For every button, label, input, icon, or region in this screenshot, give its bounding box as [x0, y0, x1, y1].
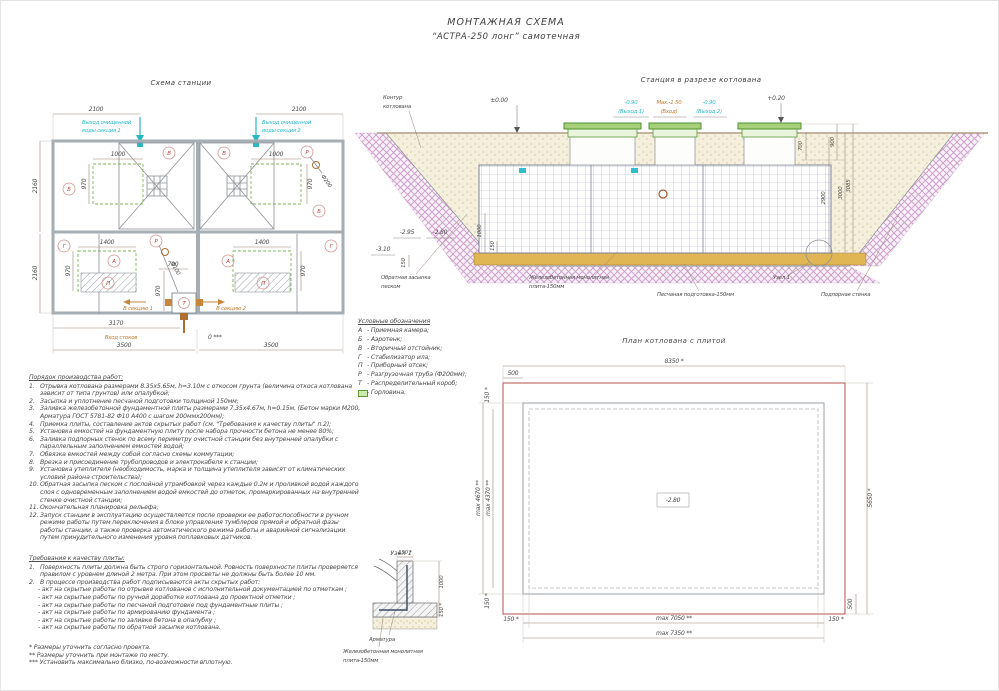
level-zero: ±0.00: [490, 97, 508, 104]
dim-3000: 3000: [838, 186, 844, 200]
dim-1000-wall: 1000: [477, 224, 483, 238]
level-inlet: Max.-1.50: [656, 100, 682, 106]
dim-500-right: 500: [847, 598, 854, 609]
node-dim-150-bottom: 150 *: [439, 603, 445, 617]
contour-label-line2: котлована: [383, 104, 411, 110]
work-order-item: 7.Обвязка емкостей между собой согласно …: [29, 451, 363, 459]
node-dim-1000: 1000: [439, 575, 445, 589]
sandprep-label: Песчаная подготовка-150мм: [657, 292, 734, 298]
dim-3500-right: 3500: [264, 342, 279, 349]
cross-section-drawing: Контур котлована ±0.00 +0.20 -0.90 (Выхо…: [369, 86, 996, 321]
footnote-1: * Размеры уточнить согласно проекта.: [29, 644, 363, 652]
level-m280: -2.80: [433, 229, 448, 236]
to-section2-label: В секцию 2: [216, 306, 247, 312]
act-line: - акт на скрытые работы по отрывке котло…: [38, 586, 363, 594]
plan-top-dims: [53, 114, 343, 139]
hopper-right: [200, 143, 274, 229]
dim-3170: 3170: [109, 320, 124, 327]
letter-G2: Г: [330, 244, 334, 250]
node1-label: Узел 1: [773, 275, 790, 281]
dim-2900: 2900: [821, 191, 827, 205]
dim-970-d: 970: [300, 265, 307, 276]
dim-150-bottom-right: 150 *: [828, 616, 844, 623]
station-plan-drawing: Выход очищенной воды секция 1 Выход очищ…: [26, 89, 361, 369]
dim-1000-left: 1000: [111, 151, 126, 158]
quality-block: Требования к качеству плиты: 1.Поверхнос…: [29, 555, 363, 632]
outlet1-label-line1: Выход очищенной: [82, 120, 132, 126]
dim-2100-left: 2100: [89, 106, 104, 113]
dim-1400-left: 1400: [100, 239, 115, 246]
station-body: [479, 165, 831, 253]
dim-970-b: 970: [307, 178, 314, 189]
station-plan-title: Схема станции: [81, 79, 281, 87]
work-order-item: 1.Отрывка котлована размерами 8.35х5.65м…: [29, 383, 363, 398]
dim-150-bottom-left: 150 *: [503, 616, 519, 623]
dim-700-neck: 700: [798, 140, 804, 150]
dim-2160-bottom: 2160: [32, 265, 39, 280]
to-section1-label: В секцию 1: [123, 306, 153, 312]
work-order-item: 9.Установка утеплителя (необходимость, м…: [29, 466, 363, 481]
outlet1-label-line2: воды секция 1: [82, 128, 121, 134]
discharge-pipes: [159, 157, 322, 292]
node1-geometry: [373, 559, 437, 629]
level-out2-note: (Выход 2): [696, 109, 722, 115]
rebar-label: Арматура: [368, 637, 395, 643]
outlet2-label-line2: воды секция 2: [262, 128, 301, 134]
level-out1: -0.90: [625, 100, 639, 106]
plate-label-line1: Железобетонная монолитная: [528, 275, 610, 281]
plan-bottom-dims: [40, 141, 343, 354]
work-order-item: 12.Запуск станции в эксплуатацию осущест…: [29, 512, 363, 542]
dim-8350: 8350 *: [665, 358, 684, 365]
level-inlet-note: (Вход): [661, 109, 678, 115]
dim-7050: max 7050 **: [656, 615, 692, 622]
letter-B1: Б: [67, 187, 71, 193]
work-order-item: 10.Обратная засыпка песком с послойной у…: [29, 481, 363, 504]
section-title: Станция в разрезе котлована: [561, 76, 841, 84]
dim-5650: 5650 *: [867, 488, 874, 507]
work-order-item: 5.Установка емкостей на фундаментную пли…: [29, 428, 363, 436]
work-order-title: Порядок производства работ:: [29, 374, 363, 382]
pit-center-level: -2.80: [666, 497, 681, 504]
dim-f200: Ф200: [319, 174, 332, 190]
level-m295: -2.95: [400, 229, 415, 236]
quality-acts: - акт на скрытые работы по отрывке котло…: [38, 586, 363, 632]
hopper-left: [119, 143, 194, 229]
dim-150-a: 150: [401, 257, 407, 267]
work-order-item: 8.Врезка и присоединение трубопроводов и…: [29, 459, 363, 467]
main-title-line1: МОНТАЖНАЯ СХЕМА: [341, 17, 671, 28]
quality-item: 1.Поверхность плиты должна быть строго г…: [29, 564, 363, 579]
act-line: - акт на скрытые работы по ручной дорабо…: [38, 594, 363, 602]
node-dim-150-top: 150 *: [398, 550, 412, 556]
contour-label-line1: Контур: [383, 95, 403, 101]
dim-4670: max 4670 **: [475, 480, 482, 516]
pit-plan-drawing: План котлована с плитой -2.80 8350 *: [471, 333, 891, 655]
main-title-line2: “АСТРА-250 лонг” самотечная: [341, 32, 671, 42]
quality-title: Требования к качеству плиты:: [29, 555, 363, 563]
footnotes: * Размеры уточнить согласно проекта. ** …: [29, 644, 363, 667]
letter-A2: А: [225, 259, 230, 265]
dim-3085: 3085: [846, 179, 852, 193]
drawing-sheet: МОНТАЖНАЯ СХЕМА “АСТРА-250 лонг” самотеч…: [0, 0, 999, 691]
letter-R1: Р: [154, 239, 158, 245]
act-line: - акт на скрытые работы по армированию ф…: [38, 609, 363, 617]
dim-900: 900: [830, 136, 836, 146]
dim-7350: max 7350 **: [656, 630, 692, 637]
dim-150-b: 150: [490, 240, 496, 250]
work-order-item: 11.Окончательная планировка рельефа;: [29, 504, 363, 512]
work-order-item: 3.Заливка железобетонной фундаментной пл…: [29, 405, 363, 420]
retaining-wall-label: Подпорная стенка: [821, 292, 870, 298]
legend-title: Условные обозначения: [358, 318, 518, 326]
dim-970-c: 970: [65, 265, 72, 276]
dim-2160-top: 2160: [32, 178, 39, 193]
dim-970-e: 970: [155, 285, 162, 296]
pit-plan-title: План котлована с плитой: [622, 337, 726, 345]
dim-970-a: 970: [81, 178, 88, 189]
dim-zero: 0 ***: [208, 334, 222, 341]
dim-1000-right: 1000: [269, 151, 284, 158]
work-order-block: Порядок производства работ: 1.Отрывка ко…: [29, 374, 363, 542]
letter-P2: П: [261, 281, 265, 287]
main-title: МОНТАЖНАЯ СХЕМА “АСТРА-250 лонг” самотеч…: [341, 17, 671, 42]
level-out1-note: (Выход 1): [618, 109, 644, 115]
dim-500-top: 500: [508, 370, 519, 377]
footnote-3: *** Установить максимально близко, по-во…: [29, 659, 363, 667]
dim-2100-right: 2100: [292, 106, 307, 113]
level-plus020: +0.20: [767, 95, 785, 102]
tank-necks: [564, 123, 801, 165]
inlet-label: Вход стоков: [105, 335, 138, 341]
dim-3500-left: 3500: [117, 342, 132, 349]
plate-label-line2: плита-150мм: [529, 284, 564, 290]
neck-outlines: [78, 164, 301, 291]
dim-1400-right: 1400: [255, 239, 270, 246]
letter-G1: Г: [63, 244, 67, 250]
backfill-label-line1: Обратная засыпка: [381, 275, 431, 281]
letter-R2: Р: [305, 150, 309, 156]
backfill-label-line2: песком: [381, 284, 400, 290]
letter-A1: А: [111, 259, 116, 265]
letter-B2: Б: [317, 209, 321, 215]
level-out2: -0.90: [703, 100, 717, 106]
letter-V2: В: [222, 151, 226, 157]
dim-150-left-top: 150 *: [484, 387, 491, 403]
level-m310: -3.10: [376, 246, 391, 253]
act-line: - акт на скрытые работы по обратной засы…: [38, 624, 363, 632]
letter-V1: В: [167, 151, 171, 157]
dim-4370: max 4370 **: [485, 480, 492, 516]
letter-P1: П: [106, 281, 110, 287]
work-order-item: 6.Заливка подпорных стенок по всему пери…: [29, 436, 363, 451]
outlet2-label-line1: Выход очищенной: [262, 120, 312, 126]
